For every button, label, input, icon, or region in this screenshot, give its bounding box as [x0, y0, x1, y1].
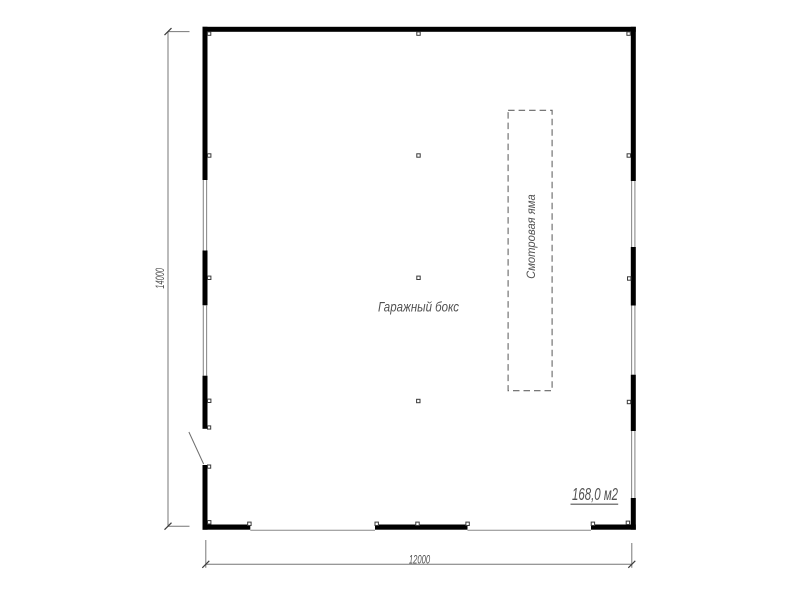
svg-text:14000: 14000: [154, 268, 167, 289]
svg-text:12000: 12000: [409, 554, 431, 567]
svg-text:Гаражный бокс: Гаражный бокс: [378, 298, 460, 314]
svg-text:168,0 м2: 168,0 м2: [572, 486, 618, 505]
svg-text:Смотровая яма: Смотровая яма: [525, 194, 539, 279]
